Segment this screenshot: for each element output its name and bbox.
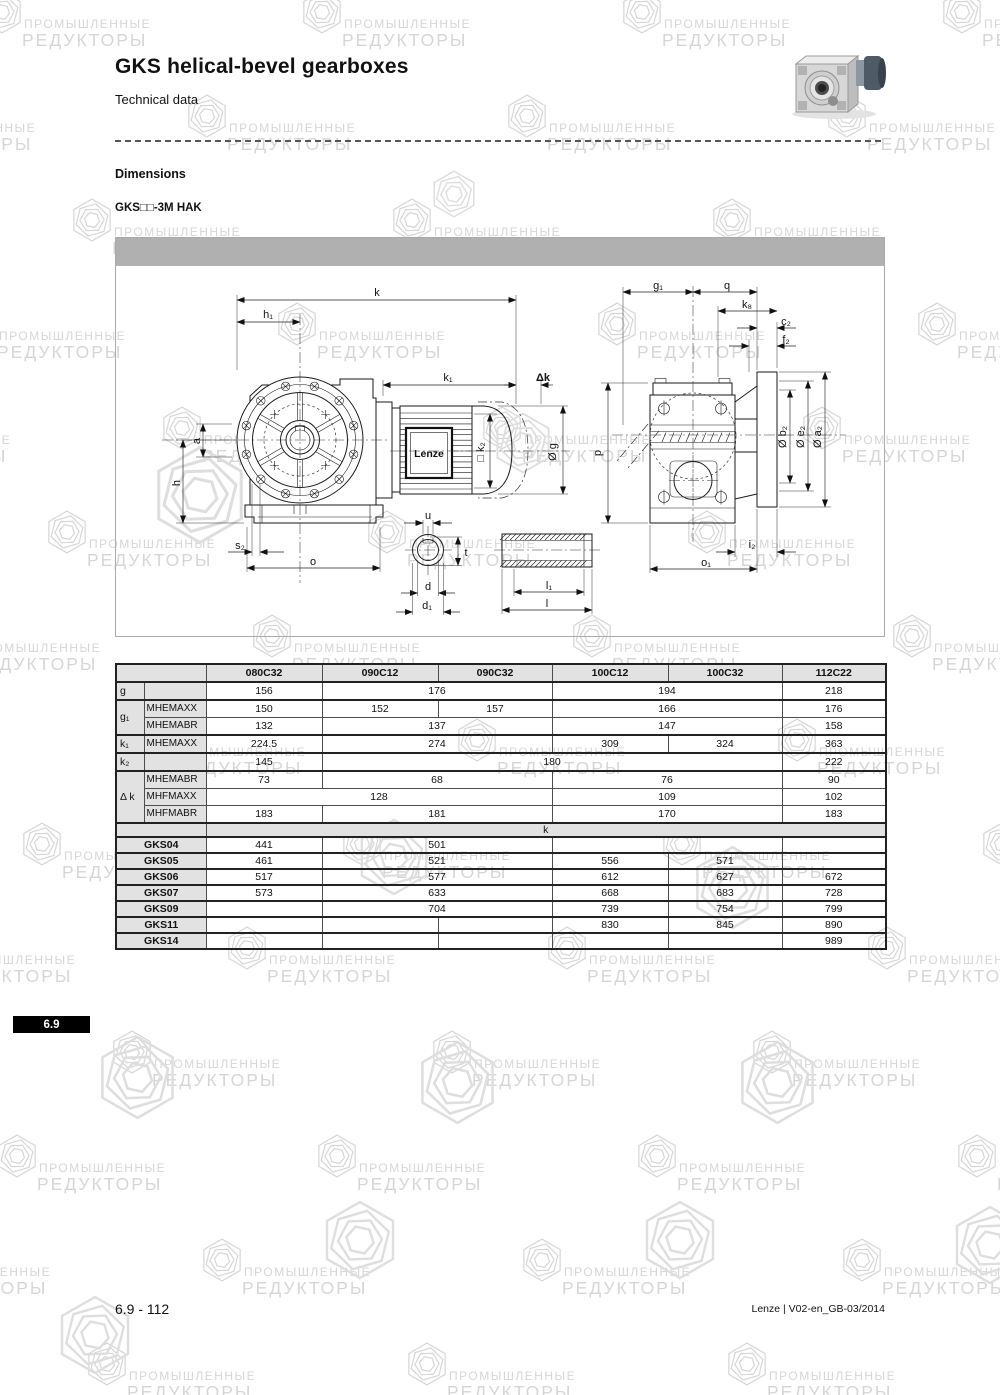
table-cell xyxy=(322,933,438,949)
table-cell xyxy=(438,917,552,933)
table-cell: 521 xyxy=(322,853,552,869)
gearbox-size-label: GKS09 xyxy=(116,901,206,917)
table-row: k₁MHEMAXX224.5274309324363 xyxy=(116,735,886,753)
table-row: GKS05461521556571 xyxy=(116,853,886,869)
table-cell: 683 xyxy=(668,885,782,901)
dim-label-i2: i₂ xyxy=(749,539,756,551)
dim-label-h: h xyxy=(171,480,183,486)
dim-label-t: t xyxy=(464,547,467,559)
motor-variant-label: MHEMABR xyxy=(144,718,206,736)
dim-label-o: o xyxy=(310,556,316,568)
table-cell: 556 xyxy=(552,853,668,869)
table-cell xyxy=(322,917,438,933)
table-row: GKS04441501 xyxy=(116,837,886,853)
table-cell xyxy=(668,933,782,949)
table-row: k₂145180222 xyxy=(116,753,886,771)
column-header: 080C32 xyxy=(206,664,322,682)
table-cell: 577 xyxy=(322,869,552,885)
table-row: MHEMABR132137147158 xyxy=(116,718,886,736)
table-cell: 128 xyxy=(206,789,552,806)
table-row: GKS14989 xyxy=(116,933,886,949)
dim-label-a: a xyxy=(191,437,203,444)
dim-label-o1: o₁ xyxy=(701,557,711,569)
table-cell: 183 xyxy=(782,806,886,824)
dimension-label: Δ k xyxy=(116,771,144,823)
document-page: ПРОМЫШЛЕННЫЕРЕДУКТОРЫПРОМЫШЛЕННЫЕРЕДУКТО… xyxy=(0,0,1000,1395)
table-row: g₁MHEMAXX150152157166176 xyxy=(116,700,886,718)
table-cell: 461 xyxy=(206,853,322,869)
k-section-row: k xyxy=(116,823,886,837)
table-cell: 170 xyxy=(552,806,782,824)
table-cell: 363 xyxy=(782,735,886,753)
table-row: GKS07573633668683728 xyxy=(116,885,886,901)
table-cell: 147 xyxy=(552,718,782,736)
dimension-label: k₂ xyxy=(116,753,144,771)
table-cell: 156 xyxy=(206,682,322,700)
table-cell: 180 xyxy=(322,753,782,771)
table-cell: 890 xyxy=(782,917,886,933)
table-cell: 152 xyxy=(322,700,438,718)
gearbox-size-label: GKS11 xyxy=(116,917,206,933)
table-cell: 830 xyxy=(552,917,668,933)
table-cell: 799 xyxy=(782,901,886,917)
table-cell xyxy=(438,933,552,949)
table-cell: 612 xyxy=(552,869,668,885)
gearbox-size-label: GKS05 xyxy=(116,853,206,869)
table-cell: 627 xyxy=(668,869,782,885)
dim-label-l: l xyxy=(546,598,548,610)
table-cell: 176 xyxy=(782,700,886,718)
table-cell: 158 xyxy=(782,718,886,736)
table-cell: 324 xyxy=(668,735,782,753)
dim-label-dk: Δk xyxy=(536,372,551,384)
motor-variant-label: MHFMAXX xyxy=(144,789,206,806)
table-cell: 137 xyxy=(322,718,552,736)
gearbox-size-label: GKS07 xyxy=(116,885,206,901)
dim-label-a2: Ø a₂ xyxy=(812,426,824,448)
dim-label-u: u xyxy=(425,510,431,522)
brand-label: Lenze xyxy=(414,448,444,460)
gearbox-size-label: GKS04 xyxy=(116,837,206,853)
table-corner-cell xyxy=(116,664,206,682)
table-cell: 573 xyxy=(206,885,322,901)
dim-label-d: d xyxy=(425,581,431,593)
table-cell: 102 xyxy=(782,789,886,806)
table-cell: 739 xyxy=(552,901,668,917)
table-cell: 166 xyxy=(552,700,782,718)
table-cell xyxy=(206,917,322,933)
column-header: 112C22 xyxy=(782,664,886,682)
table-cell: 157 xyxy=(438,700,552,718)
page-subtitle: Technical data xyxy=(115,92,198,107)
table-header-row: 080C32090C12090C32100C12100C32112C22 xyxy=(116,664,886,682)
motor-variant-label: MHEMAXX xyxy=(144,700,206,718)
footer-page-number: 6.9 - 112 xyxy=(115,1301,169,1317)
table-cell xyxy=(552,837,782,853)
table-cell xyxy=(552,933,668,949)
table-cell: 76 xyxy=(552,771,782,789)
dimensions-table: 080C32090C12090C32100C12100C32112C22g156… xyxy=(115,663,887,950)
dim-label-k2-square: □ k₂ xyxy=(475,442,487,461)
chapter-tab: 6.9 xyxy=(13,1016,90,1033)
table-row: g156176194218 xyxy=(116,682,886,700)
page-title: GKS helical-bevel gearboxes xyxy=(115,55,409,79)
table-cell: 668 xyxy=(552,885,668,901)
table-cell: 224.5 xyxy=(206,735,322,753)
column-header: 100C32 xyxy=(668,664,782,682)
table-cell: 501 xyxy=(322,837,552,853)
table-cell: 132 xyxy=(206,718,322,736)
motor-variant-label xyxy=(144,753,206,771)
dimension-drawing: Lenze xyxy=(115,237,885,637)
table-cell: 672 xyxy=(782,869,886,885)
table-row: MHFMABR183181170183 xyxy=(116,806,886,824)
column-header: 090C12 xyxy=(322,664,438,682)
motor-variant-label: MHFMABR xyxy=(144,806,206,824)
table-cell: 68 xyxy=(322,771,552,789)
column-header: 090C32 xyxy=(438,664,552,682)
motor-variant-label xyxy=(144,682,206,700)
table-cell: 274 xyxy=(322,735,552,753)
table-cell: 181 xyxy=(322,806,552,824)
table-cell: 633 xyxy=(322,885,552,901)
dim-label-f2: f₂ xyxy=(782,334,789,346)
dim-label-e2: Ø e₂ xyxy=(795,426,807,448)
table-row: Δ kMHEMABR73687690 xyxy=(116,771,886,789)
column-header: 100C12 xyxy=(552,664,668,682)
dim-label-p: p xyxy=(592,450,604,456)
table-cell: 441 xyxy=(206,837,322,853)
table-cell: 176 xyxy=(322,682,552,700)
table-cell: 989 xyxy=(782,933,886,949)
table-cell xyxy=(782,853,886,869)
table-cell: 571 xyxy=(668,853,782,869)
table-cell: 754 xyxy=(668,901,782,917)
table-cell: 309 xyxy=(552,735,668,753)
footer-version: Lenze | V02-en_GB-03/2014 xyxy=(500,1303,885,1315)
table-cell xyxy=(206,901,322,917)
table-row: MHFMAXX128109102 xyxy=(116,789,886,806)
dim-label-k: k xyxy=(374,287,380,299)
table-cell: 218 xyxy=(782,682,886,700)
dimension-label: k₁ xyxy=(116,735,144,753)
gearbox-size-label: GKS14 xyxy=(116,933,206,949)
table-cell: 109 xyxy=(552,789,782,806)
table-cell: 150 xyxy=(206,700,322,718)
section-heading: Dimensions xyxy=(115,167,186,181)
dim-label-q: q xyxy=(724,280,730,292)
table-cell: 194 xyxy=(552,682,782,700)
table-cell: 728 xyxy=(782,885,886,901)
dim-label-s2: s₂ xyxy=(235,540,245,552)
table-cell: 183 xyxy=(206,806,322,824)
dim-label-h1: h₁ xyxy=(263,309,273,321)
dim-label-d1: d₁ xyxy=(422,600,432,612)
table-row: GKS06517577612627672 xyxy=(116,869,886,885)
table-cell: 90 xyxy=(782,771,886,789)
dim-label-g-dia: Ø g xyxy=(547,443,559,461)
table-cell: 845 xyxy=(668,917,782,933)
table-cell xyxy=(782,837,886,853)
dim-label-b2: Ø b₂ xyxy=(777,426,789,448)
table-cell: 145 xyxy=(206,753,322,771)
dim-label-k8: k₈ xyxy=(742,299,752,311)
dim-label-k1: k₁ xyxy=(443,372,453,384)
dimensions-table-container: 080C32090C12090C32100C12100C32112C22g156… xyxy=(115,663,887,950)
dim-label-l1: l₁ xyxy=(546,580,552,592)
variant-label: GKS□□-3M HAK xyxy=(115,202,202,214)
table-row: GKS11830845890 xyxy=(116,917,886,933)
k-section-header: k xyxy=(206,823,886,837)
table-cell: 517 xyxy=(206,869,322,885)
gearbox-size-label: GKS06 xyxy=(116,869,206,885)
table-cell: 222 xyxy=(782,753,886,771)
table-cell xyxy=(206,933,322,949)
motor-variant-label: MHEMAXX xyxy=(144,735,206,753)
dimension-label: g xyxy=(116,682,144,700)
dashed-divider xyxy=(115,140,885,142)
table-cell: 704 xyxy=(322,901,552,917)
dim-label-g1: g₁ xyxy=(653,280,663,292)
table-cell: 73 xyxy=(206,771,322,789)
motor-variant-label: MHEMABR xyxy=(144,771,206,789)
table-row: GKS09704739754799 xyxy=(116,901,886,917)
dimension-label: g₁ xyxy=(116,700,144,735)
product-photo xyxy=(786,48,886,122)
dim-label-c2: c₂ xyxy=(781,316,791,328)
